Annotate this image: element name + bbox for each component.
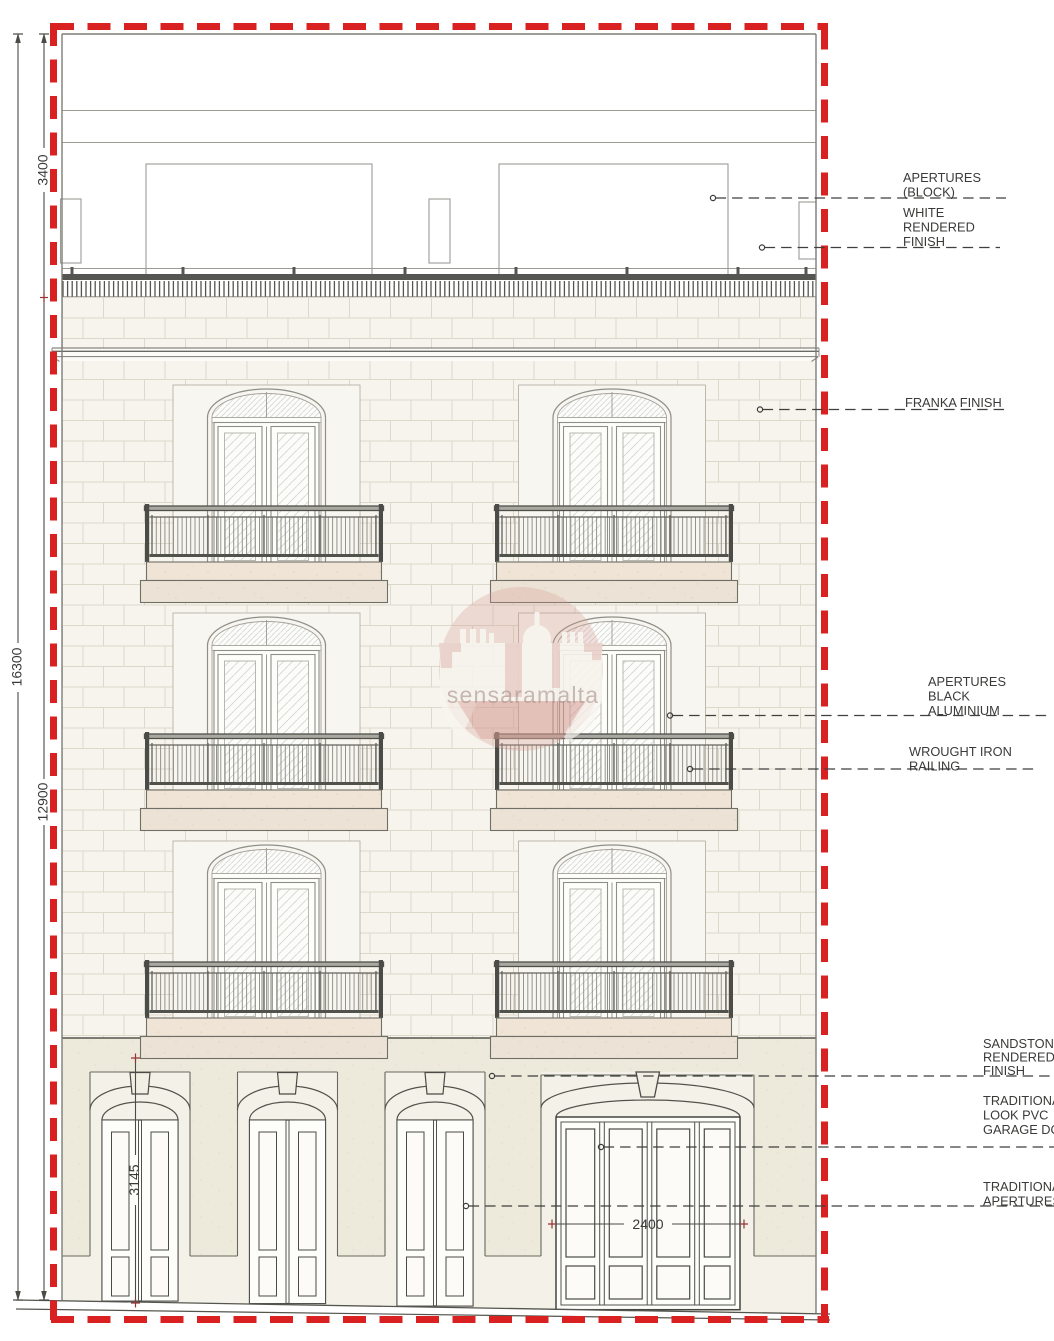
svg-text:WROUGHT IRON: WROUGHT IRON bbox=[909, 744, 1012, 759]
svg-text:FRANKA FINISH: FRANKA FINISH bbox=[905, 395, 1002, 410]
svg-text:APERTURES: APERTURES bbox=[903, 170, 981, 185]
svg-text:2400: 2400 bbox=[632, 1216, 663, 1232]
svg-text:BLACK: BLACK bbox=[928, 689, 970, 704]
svg-text:16300: 16300 bbox=[9, 647, 25, 686]
svg-text:GARAGE DOOR: GARAGE DOOR bbox=[983, 1122, 1054, 1137]
svg-text:(BLOCK): (BLOCK) bbox=[903, 185, 955, 200]
svg-text:APERTURES: APERTURES bbox=[983, 1194, 1054, 1209]
svg-text:LOOK PVC: LOOK PVC bbox=[983, 1108, 1048, 1123]
svg-text:12900: 12900 bbox=[35, 782, 51, 821]
svg-text:TRADITIONAL: TRADITIONAL bbox=[983, 1179, 1054, 1194]
svg-text:APERTURES: APERTURES bbox=[928, 674, 1006, 689]
svg-text:3400: 3400 bbox=[35, 154, 51, 185]
svg-text:RAILING: RAILING bbox=[909, 759, 960, 774]
svg-text:FINISH: FINISH bbox=[903, 234, 945, 249]
svg-text:sensaramalta: sensaramalta bbox=[447, 682, 599, 708]
svg-text:TRADITIONAL: TRADITIONAL bbox=[983, 1093, 1054, 1108]
svg-text:RENDERED: RENDERED bbox=[903, 220, 975, 235]
svg-text:3145: 3145 bbox=[126, 1164, 142, 1195]
svg-text:ALUMINIUM: ALUMINIUM bbox=[928, 703, 1000, 718]
svg-text:WHITE: WHITE bbox=[903, 205, 944, 220]
svg-text:FINISH: FINISH bbox=[983, 1063, 1025, 1078]
